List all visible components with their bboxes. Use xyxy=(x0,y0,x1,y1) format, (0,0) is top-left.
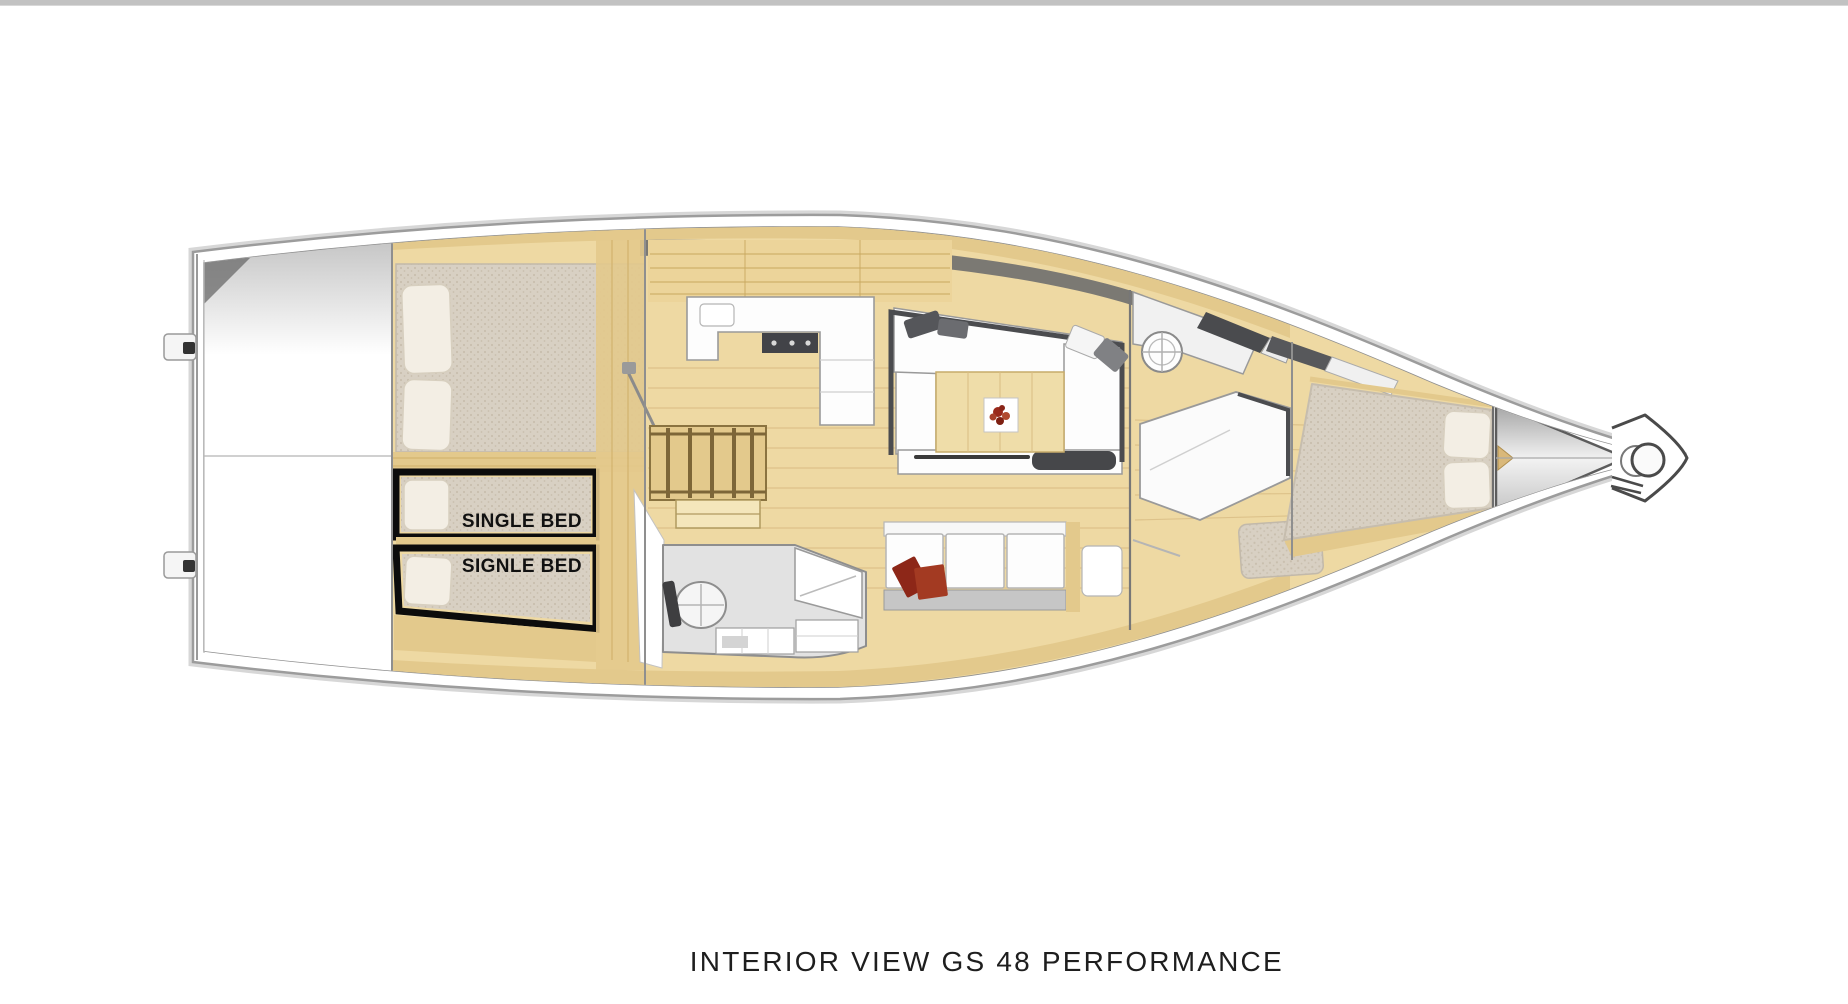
windlass xyxy=(1632,444,1664,476)
aft-head-bathroom xyxy=(662,545,866,658)
red-cushion xyxy=(914,564,948,600)
pillow xyxy=(1443,411,1491,459)
pillow xyxy=(401,284,452,374)
yacht-floorplan-figure: SINGLE BED SIGNLE BED xyxy=(0,0,1848,1004)
single-bed-lower-label: SIGNLE BED xyxy=(462,556,582,577)
single-bed-upper: SINGLE BED xyxy=(396,472,596,537)
sideboard-top xyxy=(1082,546,1122,596)
pillow xyxy=(404,480,449,530)
settee-dark-cushion xyxy=(1032,451,1116,470)
plan-caption: INTERIOR VIEW GS 48 PERFORMANCE xyxy=(690,946,1284,978)
galley-upper-cabinets xyxy=(648,240,952,302)
yacht-floorplan-svg: SINGLE BED SIGNLE BED xyxy=(0,0,1848,1004)
stern-transom xyxy=(164,254,204,660)
pillow xyxy=(1443,461,1491,509)
saloon-table xyxy=(936,372,1064,452)
bow-fitting xyxy=(1611,415,1687,501)
single-bed-lower: SIGNLE BED xyxy=(396,548,596,629)
stern-cockpit-area xyxy=(204,225,392,695)
pillow xyxy=(404,556,452,606)
galley-sink xyxy=(700,304,734,326)
pillow xyxy=(402,379,452,451)
saloon-u-settee xyxy=(891,308,1130,474)
single-bed-upper-label: SINGLE BED xyxy=(462,511,582,532)
